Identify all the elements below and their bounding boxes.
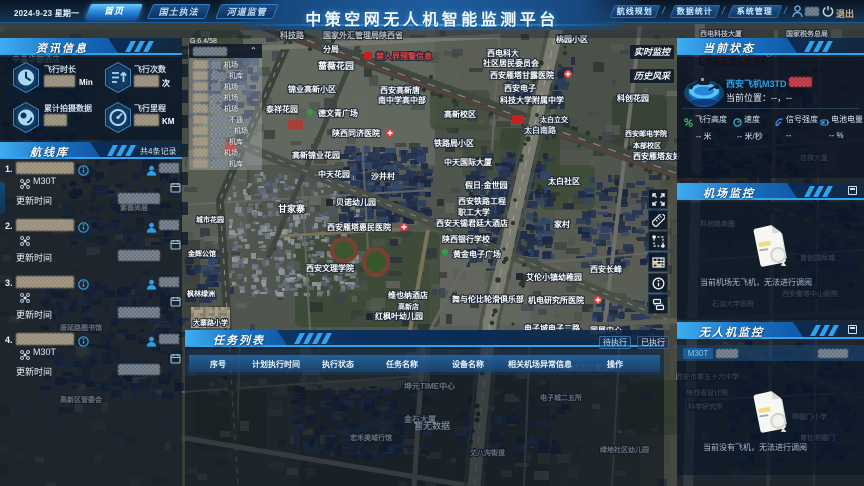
svg-text:红枫叶幼儿园: 红枫叶幼儿园 bbox=[375, 311, 423, 321]
svg-text:太白南路: 太白南路 bbox=[523, 125, 557, 135]
svg-text:沙井村: 沙井村 bbox=[371, 171, 395, 181]
svg-text:西安铁路工程: 西安铁路工程 bbox=[458, 196, 506, 206]
svg-text:西安天锡君廷大酒店: 西安天锡君廷大酒店 bbox=[436, 218, 508, 228]
svg-text:科创花园: 科创花园 bbox=[617, 93, 649, 103]
svg-text:黄金电子广场: 黄金电子广场 bbox=[453, 249, 501, 259]
svg-text:铁路局小区: 铁路局小区 bbox=[434, 138, 474, 148]
svg-text:西安雁塔友好: 西安雁塔友好 bbox=[633, 151, 681, 161]
svg-text:贝诺幼儿园: 贝诺幼儿园 bbox=[336, 197, 376, 207]
svg-text:西安邮电学院: 西安邮电学院 bbox=[625, 129, 667, 138]
svg-text:泰祥花园: 泰祥花园 bbox=[265, 104, 298, 114]
svg-text:陕西同济医院: 陕西同济医院 bbox=[332, 128, 380, 138]
svg-text:舞与伦比轮滑俱乐部: 舞与伦比轮滑俱乐部 bbox=[451, 294, 524, 304]
svg-text:甘家寨: 甘家寨 bbox=[278, 203, 306, 214]
svg-text:科技大学附属中学: 科技大学附属中学 bbox=[500, 95, 564, 105]
svg-text:机电研究所医院: 机电研究所医院 bbox=[528, 295, 584, 305]
svg-text:社区居民委员会: 社区居民委员会 bbox=[482, 58, 539, 68]
svg-text:大寨路小学: 大寨路小学 bbox=[193, 318, 228, 327]
svg-text:蔷薇花园: 蔷薇花园 bbox=[318, 60, 354, 71]
svg-text:高新店: 高新店 bbox=[398, 302, 419, 311]
svg-text:西安雁塔甘露医院: 西安雁塔甘露医院 bbox=[490, 70, 554, 80]
svg-text:西安高新唐: 西安高新唐 bbox=[380, 85, 420, 95]
svg-text:西安雁塔惠民医院: 西安雁塔惠民医院 bbox=[327, 222, 391, 232]
svg-text:太白社区: 太白社区 bbox=[547, 176, 580, 186]
svg-text:禁入界预警信息: 禁入界预警信息 bbox=[375, 51, 432, 61]
svg-text:太白立交: 太白立交 bbox=[540, 115, 569, 124]
svg-text:城市花园: 城市花园 bbox=[196, 215, 224, 224]
svg-text:分局: 分局 bbox=[323, 44, 339, 54]
svg-text:维也纳酒店: 维也纳酒店 bbox=[388, 290, 428, 300]
svg-text:中天国际大厦: 中天国际大厦 bbox=[444, 157, 493, 167]
svg-text:高新锦业花园: 高新锦业花园 bbox=[292, 150, 340, 160]
svg-text:陕西银行学校: 陕西银行学校 bbox=[442, 234, 491, 244]
svg-text:高新校区: 高新校区 bbox=[444, 109, 476, 119]
svg-text:西安文理学院: 西安文理学院 bbox=[306, 263, 354, 273]
svg-text:假日·金世园: 假日·金世园 bbox=[465, 180, 508, 190]
svg-text:家村: 家村 bbox=[554, 219, 570, 229]
svg-text:枫林绿洲: 枫林绿洲 bbox=[187, 289, 215, 298]
svg-text:金辉公馆: 金辉公馆 bbox=[187, 249, 216, 258]
svg-text:西安电子: 西安电子 bbox=[504, 83, 536, 93]
svg-text:中天花园: 中天花园 bbox=[318, 169, 350, 179]
svg-text:南中学高中部: 南中学高中部 bbox=[378, 95, 426, 105]
svg-text:西电科大: 西电科大 bbox=[487, 48, 519, 58]
svg-text:锦业高新小区: 锦业高新小区 bbox=[288, 84, 336, 94]
svg-text:德文青广场: 德文青广场 bbox=[318, 108, 358, 118]
svg-text:艾伦小镇幼稚园: 艾伦小镇幼稚园 bbox=[526, 272, 582, 282]
svg-text:职工大学: 职工大学 bbox=[458, 207, 490, 217]
svg-text:西安长峰: 西安长峰 bbox=[590, 264, 622, 274]
svg-text:本部校区: 本部校区 bbox=[632, 141, 661, 150]
